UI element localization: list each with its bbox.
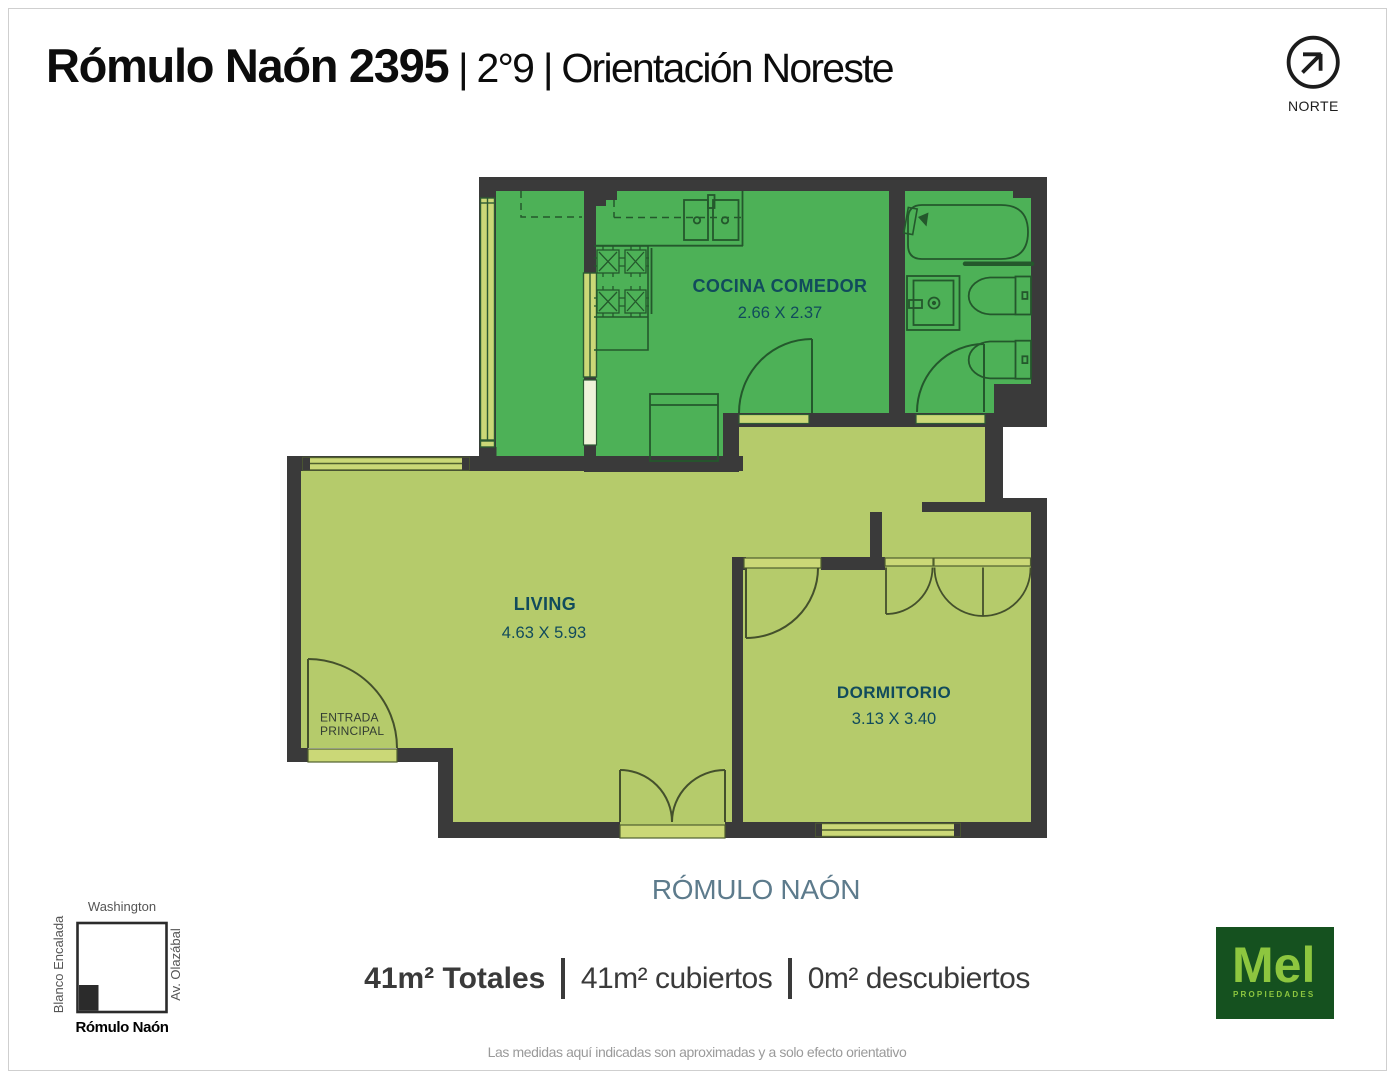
svg-text:DORMITORIO: DORMITORIO xyxy=(837,683,951,702)
svg-text:4.63 X 5.93: 4.63 X 5.93 xyxy=(502,624,586,642)
svg-text:2.66 X 2.37: 2.66 X 2.37 xyxy=(738,304,822,322)
svg-text:PRINCIPAL: PRINCIPAL xyxy=(320,724,384,738)
svg-text:3.13 X 3.40: 3.13 X 3.40 xyxy=(852,710,936,728)
svg-text:COCINA COMEDOR: COCINA COMEDOR xyxy=(693,276,868,296)
svg-text:Blanco Encalada: Blanco Encalada xyxy=(51,915,66,1013)
svg-text:Washington: Washington xyxy=(88,899,156,914)
svg-text:Rómulo Naón: Rómulo Naón xyxy=(75,1019,168,1036)
svg-text:Av. Olazábal: Av. Olazábal xyxy=(168,928,183,1001)
svg-text:ENTRADA: ENTRADA xyxy=(320,711,379,725)
svg-text:LIVING: LIVING xyxy=(514,594,576,614)
